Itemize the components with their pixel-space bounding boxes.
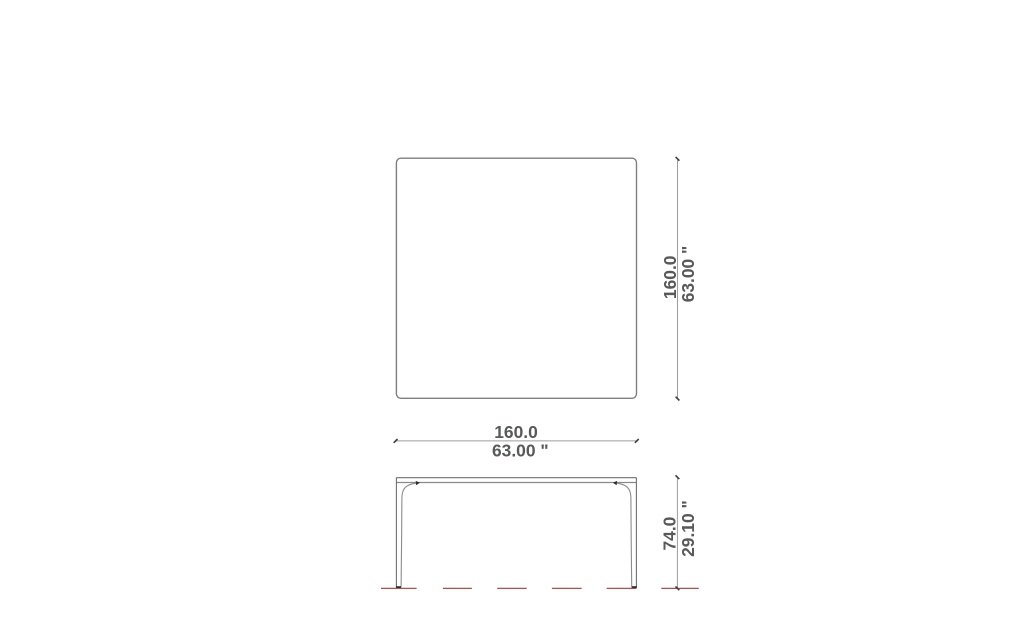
svg-text:63.00 ": 63.00 " (492, 440, 549, 460)
svg-text:160.0: 160.0 (660, 256, 680, 300)
svg-text:63.00 ": 63.00 " (678, 246, 698, 303)
svg-text:74.0: 74.0 (660, 517, 680, 551)
svg-text:160.0: 160.0 (494, 422, 538, 442)
svg-text:29.10 ": 29.10 " (678, 500, 698, 557)
